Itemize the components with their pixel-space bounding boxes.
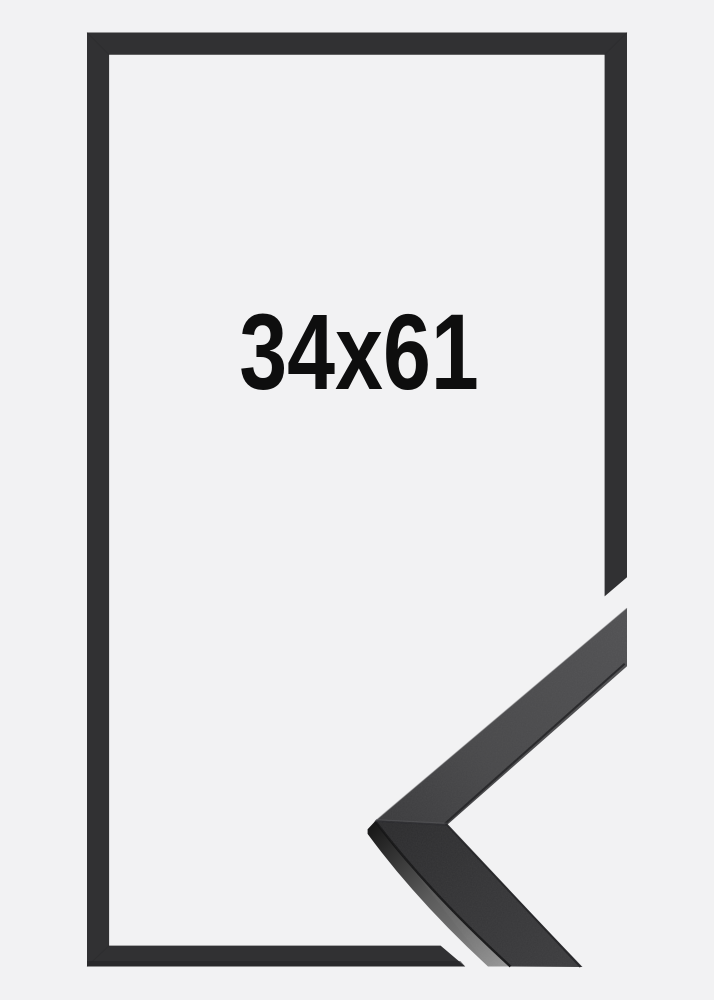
svg-text:34x61: 34x61 (239, 292, 479, 412)
